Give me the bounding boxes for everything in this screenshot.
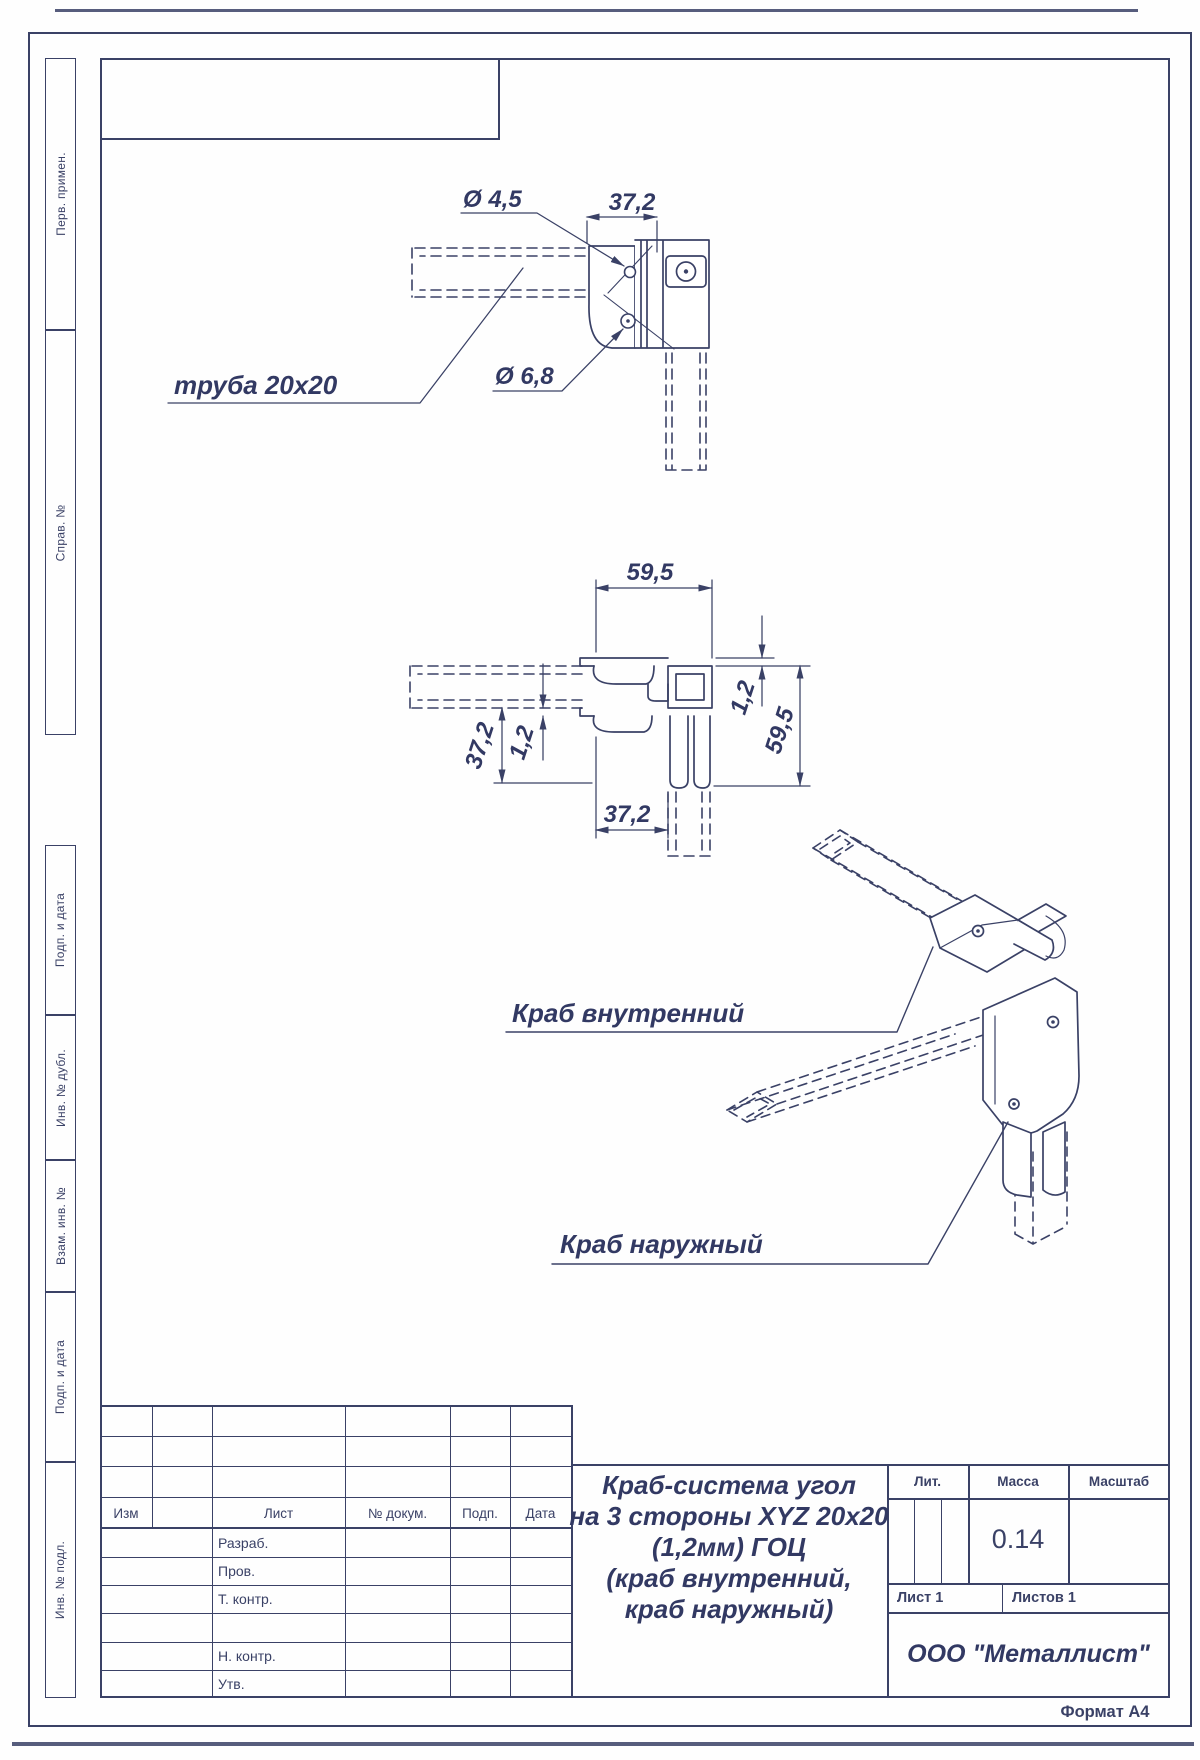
label-outer-text: Краб наружный <box>560 1229 763 1259</box>
dim-right-height-text: 59,5 <box>760 704 800 757</box>
iso-view: Краб внутренний Краб наружный <box>506 830 1079 1264</box>
screw-head <box>666 256 706 287</box>
dim-left-thickness-text: 1,2 <box>504 722 540 763</box>
tube-cross-section <box>668 666 712 708</box>
iso-crab-outer <box>983 978 1079 1197</box>
dim-59-5-top <box>596 580 712 658</box>
dim-left-height-text: 37,2 <box>460 719 500 772</box>
crab-bottom-profile <box>580 708 710 788</box>
iso-tube-lower <box>727 1014 1010 1122</box>
dim-width-text: 37,2 <box>609 189 656 216</box>
tube-horizontal-dashed <box>412 248 585 297</box>
dim-right-thickness-text: 1,2 <box>725 677 761 718</box>
crab-plate <box>589 246 635 348</box>
crab-top-profile <box>580 658 668 701</box>
tube-label-text: труба 20x20 <box>174 370 338 400</box>
dim-bottom-text: 37,2 <box>604 801 651 828</box>
iso-crab-inner <box>930 895 1066 972</box>
dim-dia-small-text: Ø 4,5 <box>463 186 522 213</box>
drawing-sheet: Перв. примен. Справ. № Подп. и дата Инв.… <box>0 0 1200 1760</box>
tube-vertical-dashed <box>668 792 710 856</box>
top-view: Ø 4,5 37,2 Ø 6,8 труба 20x20 <box>168 186 709 470</box>
drawing-views: Ø 4,5 37,2 Ø 6,8 труба 20x20 <box>0 0 1200 1760</box>
dim-top-text: 59,5 <box>627 559 674 586</box>
tube-vertical-dashed <box>666 353 706 470</box>
label-inner-text: Краб внутренний <box>512 998 744 1028</box>
section-view: 59,5 1,2 59,5 37,2 1,2 37,2 <box>410 559 810 856</box>
dim-dia-large-text: Ø 6,8 <box>495 363 554 390</box>
tube-horizontal-dashed <box>410 666 582 708</box>
